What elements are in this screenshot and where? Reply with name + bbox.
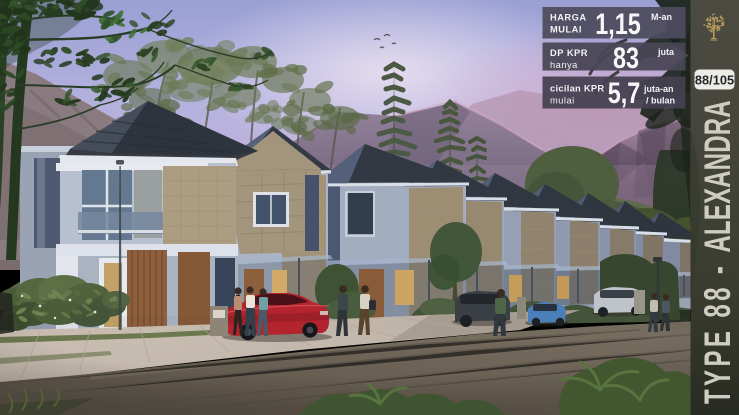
svg-text:DP KPR: DP KPR (550, 48, 588, 58)
svg-text:TYPE 88 - ALEXANDRA: TYPE 88 - ALEXANDRA (697, 100, 739, 404)
svg-text:88/105: 88/105 (695, 73, 734, 88)
svg-text:juta-an: juta-an (643, 84, 674, 94)
svg-text:1,15: 1,15 (595, 7, 641, 40)
svg-text:/ bulan: / bulan (646, 96, 675, 106)
svg-text:hanya: hanya (550, 60, 578, 70)
svg-text:5,7: 5,7 (608, 76, 641, 109)
svg-text:MULAI: MULAI (550, 25, 582, 35)
svg-text:HARGA: HARGA (550, 13, 587, 23)
svg-text:M-an: M-an (651, 12, 672, 22)
svg-text:83: 83 (613, 41, 639, 74)
svg-text:mulai: mulai (550, 96, 575, 106)
svg-text:juta: juta (657, 47, 675, 57)
svg-text:cicilan KPR: cicilan KPR (550, 84, 604, 94)
